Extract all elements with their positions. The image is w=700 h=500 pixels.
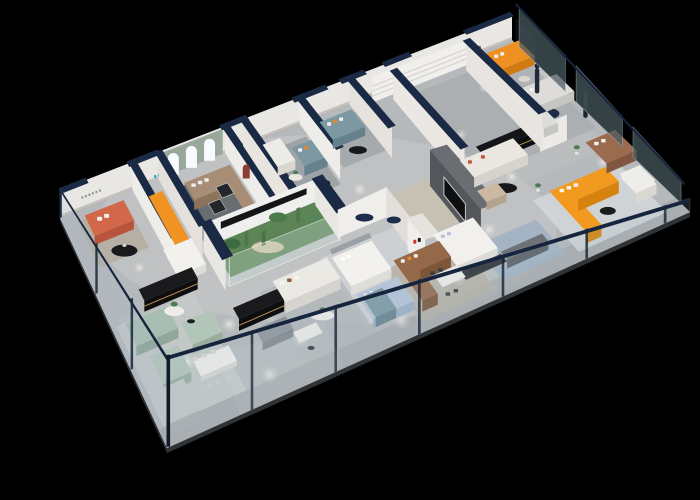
sofa-cushions [500,52,504,56]
wall-art-dashes [85,195,87,198]
sofa-cushions [407,257,411,261]
corner-post-west [60,187,62,218]
sofa-cushions [298,148,302,152]
sofa-cushions [304,146,308,150]
sofa-cushions [280,281,285,285]
side-table [518,76,530,82]
logo-mark-red-black [413,240,416,244]
wall-art-dashes [81,196,83,199]
sofa-cushions [530,88,534,91]
sofa-cushions [294,276,299,280]
sofa-cushions [327,122,331,126]
sofa-cushions [339,117,343,121]
front-glass-mullion [418,279,421,335]
person-figure [535,68,539,93]
sofa-cushions [333,120,337,124]
left-glass-mullion [95,243,97,294]
sofa-cushions [198,181,203,185]
sofa-cushions [104,214,109,218]
round-table-small [289,174,303,181]
plant-right-pot [575,152,579,155]
side-table-dark [187,319,195,323]
downlight-glow [353,182,367,196]
terrarium-cactus [245,230,249,248]
sofa-cushions [560,189,565,193]
arch-window [204,139,215,161]
wall-art-dashes [92,192,94,195]
wall-art-dashes [88,194,90,197]
sofa-cushions [594,142,599,146]
arch-window [186,146,197,168]
red-arch-niche [243,164,250,178]
table-vase [122,244,126,246]
bed-pillows [447,232,451,235]
sofa-cushions [401,259,405,263]
terrarium-plant [269,212,287,222]
isometric-showroom-floorplan [0,0,700,500]
coffee-table-dark-oval [600,207,616,215]
front-glass-mullion [502,254,505,297]
bed-pillows [347,255,352,258]
floor-plant-pot [536,189,540,192]
sofa-cushions [204,178,209,182]
front-glass-mullion [664,205,667,224]
wall-art-dashes [95,191,97,194]
sofa-cushions [97,217,102,221]
downlight-glow [133,262,145,274]
sofa-cushions [474,158,478,162]
sofa-cushions [481,155,485,159]
showroom-3d-render-stage [0,0,700,500]
bed-pillows [341,257,346,260]
sofa-cushions [191,183,196,187]
logo-mark-red-black [418,238,421,242]
sofa-cushions [414,254,418,258]
coffee-table-black-oval [349,146,367,154]
dining-chairs [430,271,435,275]
round-table-white [164,306,184,316]
sofa-cushions [601,139,606,143]
round-table-navy [387,217,401,224]
table-plant [171,302,178,307]
sofa-cushions [287,279,292,283]
sofa-cushions [574,183,579,187]
downlight-glow [221,316,237,332]
round-table-navy [355,214,373,222]
table-plant [293,171,298,175]
terrarium-cactus [296,207,300,224]
sofa-cushions [494,55,498,59]
dining-chairs [438,268,443,272]
sofa-cushions [468,160,472,164]
floor-plant [535,183,541,187]
logo-mark-teal [154,175,157,178]
front-glass-mullion [585,228,588,259]
plant-right [574,145,580,149]
wall-art-dashes [99,189,101,192]
bed-pillows [441,235,445,238]
left-glass-mullion [131,298,134,370]
corner-post-south [167,355,171,447]
sofa-cushions [567,186,572,190]
